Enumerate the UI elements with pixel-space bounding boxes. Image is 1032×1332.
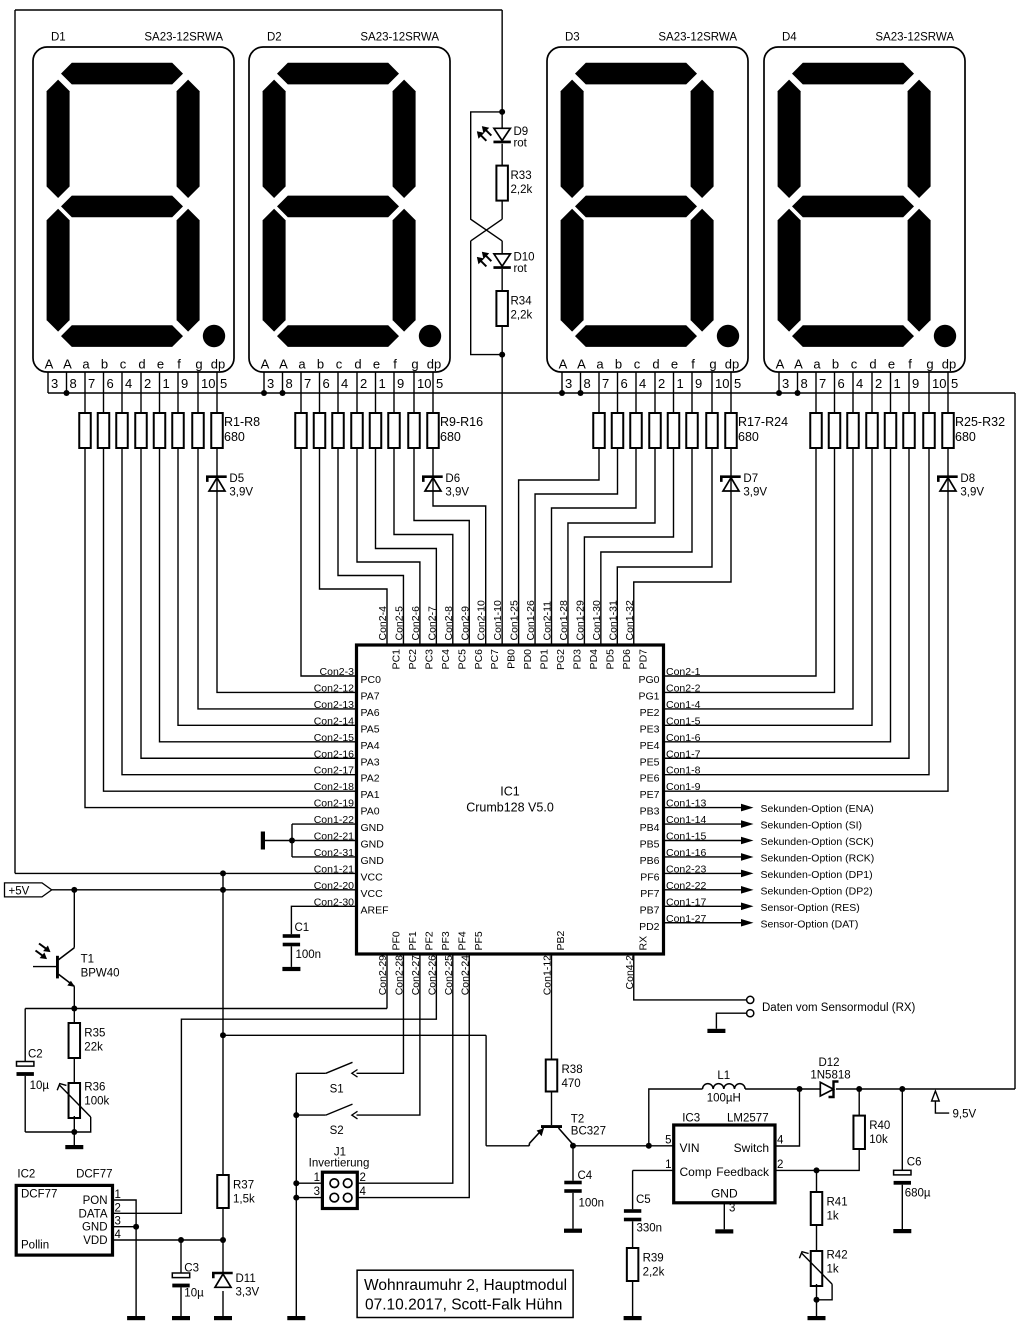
svg-text:GND: GND: [711, 1187, 738, 1201]
svg-text:Con2-6: Con2-6: [410, 606, 422, 641]
svg-text:Con1-8: Con1-8: [666, 765, 701, 777]
svg-text:PE4: PE4: [640, 740, 660, 752]
svg-text:R40: R40: [869, 1120, 890, 1132]
svg-text:LM2577: LM2577: [727, 1113, 769, 1125]
svg-text:PA2: PA2: [361, 773, 380, 785]
svg-text:680: 680: [224, 430, 245, 444]
svg-text:PB0: PB0: [506, 649, 518, 669]
svg-text:Sekunden-Option (SCK): Sekunden-Option (SCK): [761, 836, 874, 848]
svg-text:D8: D8: [960, 473, 975, 485]
svg-text:PA7: PA7: [361, 690, 380, 702]
svg-text:PD2: PD2: [639, 921, 660, 933]
svg-text:PE7: PE7: [640, 789, 660, 801]
svg-text:680: 680: [955, 430, 976, 444]
svg-text:BPW40: BPW40: [81, 968, 120, 980]
svg-text:3,9V: 3,9V: [445, 487, 469, 499]
svg-text:680: 680: [440, 430, 461, 444]
svg-text:Pollin: Pollin: [21, 1240, 49, 1252]
svg-text:PB7: PB7: [640, 904, 660, 916]
svg-text:1k: 1k: [827, 1264, 839, 1276]
svg-text:Sekunden-Option (RCK): Sekunden-Option (RCK): [761, 852, 875, 864]
svg-text:Con1-26: Con1-26: [525, 600, 537, 640]
svg-text:9,5V: 9,5V: [953, 1109, 977, 1121]
svg-text:Switch: Switch: [734, 1141, 769, 1155]
svg-text:PB3: PB3: [640, 806, 660, 818]
svg-text:Con1-5: Con1-5: [666, 715, 701, 727]
svg-text:PF7: PF7: [640, 888, 659, 900]
svg-text:VDD: VDD: [83, 1235, 107, 1247]
svg-text:Con2-11: Con2-11: [542, 601, 554, 641]
svg-text:PF2: PF2: [423, 931, 435, 950]
svg-text:R37: R37: [233, 1180, 254, 1192]
svg-text:Con1-9: Con1-9: [666, 781, 701, 793]
svg-text:680µ: 680µ: [905, 1188, 931, 1200]
svg-text:1k: 1k: [827, 1211, 839, 1223]
svg-text:Comp: Comp: [680, 1165, 712, 1179]
svg-text:1N5818: 1N5818: [810, 1070, 850, 1082]
svg-text:Con1-28: Con1-28: [558, 600, 570, 640]
svg-text:2: 2: [777, 1159, 783, 1171]
svg-text:PC1: PC1: [391, 649, 403, 670]
svg-text:3,9V: 3,9V: [743, 487, 767, 499]
svg-text:Con1-31: Con1-31: [607, 600, 619, 640]
svg-text:Con2-7: Con2-7: [426, 606, 438, 641]
svg-text:D10: D10: [513, 252, 534, 264]
svg-text:5: 5: [665, 1135, 671, 1147]
svg-text:Con1-10: Con1-10: [492, 600, 504, 640]
svg-text:IC3: IC3: [682, 1113, 700, 1125]
svg-text:VIN: VIN: [680, 1141, 700, 1155]
svg-text:R36: R36: [84, 1082, 105, 1094]
svg-text:T2: T2: [571, 1114, 584, 1126]
svg-text:Con1-29: Con1-29: [574, 600, 586, 640]
svg-text:VCC: VCC: [361, 888, 384, 900]
svg-text:D12: D12: [818, 1057, 839, 1069]
svg-text:R34: R34: [511, 296, 533, 308]
svg-text:3: 3: [115, 1216, 121, 1228]
svg-text:330n: 330n: [637, 1223, 663, 1235]
svg-text:PF3: PF3: [440, 931, 452, 950]
svg-text:D4: D4: [782, 32, 797, 44]
svg-text:R35: R35: [84, 1028, 105, 1040]
svg-text:Con2-4: Con2-4: [377, 606, 389, 641]
svg-text:Con2-2: Con2-2: [666, 682, 701, 694]
svg-text:rot: rot: [513, 138, 527, 150]
svg-text:S2: S2: [330, 1125, 344, 1137]
svg-text:SA23-12SRWA: SA23-12SRWA: [658, 32, 737, 44]
svg-text:1: 1: [665, 1159, 671, 1171]
svg-text:22k: 22k: [84, 1042, 103, 1054]
svg-text:Con2-19: Con2-19: [314, 798, 354, 810]
svg-text:Sekunden-Option (DP2): Sekunden-Option (DP2): [761, 885, 873, 897]
svg-text:PE6: PE6: [640, 773, 660, 785]
svg-text:R25-R32: R25-R32: [955, 415, 1005, 429]
svg-text:RX: RX: [637, 936, 649, 951]
svg-text:PG1: PG1: [638, 690, 659, 702]
svg-text:PC0: PC0: [361, 674, 382, 686]
svg-text:PD4: PD4: [588, 649, 600, 670]
svg-text:R39: R39: [643, 1253, 664, 1265]
svg-text:100n: 100n: [579, 1198, 605, 1210]
svg-text:100n: 100n: [296, 949, 322, 961]
svg-text:C5: C5: [636, 1194, 651, 1206]
svg-text:PF5: PF5: [473, 931, 485, 950]
svg-text:Con2-14: Con2-14: [314, 715, 354, 727]
svg-text:+5V: +5V: [9, 885, 30, 897]
svg-text:4: 4: [115, 1229, 122, 1241]
svg-text:GND: GND: [82, 1222, 108, 1234]
svg-text:GND: GND: [361, 839, 385, 851]
svg-text:Sekunden-Option (DP1): Sekunden-Option (DP1): [761, 869, 873, 881]
svg-text:R1-R8: R1-R8: [224, 415, 260, 429]
svg-text:Sensor-Option (RES): Sensor-Option (RES): [761, 902, 860, 914]
svg-text:Con2-10: Con2-10: [476, 600, 488, 640]
svg-text:Con1-4: Con1-4: [666, 699, 701, 711]
svg-text:PF6: PF6: [640, 871, 659, 883]
svg-text:3,3V: 3,3V: [236, 1287, 260, 1299]
svg-text:D2: D2: [267, 32, 282, 44]
svg-text:PF1: PF1: [407, 931, 419, 950]
svg-text:Con2-16: Con2-16: [314, 748, 354, 760]
svg-text:3: 3: [314, 1186, 320, 1198]
svg-text:C4: C4: [578, 1170, 593, 1182]
svg-text:DCF77: DCF77: [21, 1189, 57, 1201]
svg-text:DATA: DATA: [79, 1208, 108, 1220]
svg-text:PA5: PA5: [361, 723, 380, 735]
svg-text:DCF77: DCF77: [76, 1169, 112, 1181]
svg-text:07.10.2017, Scott-Falk Hühn: 07.10.2017, Scott-Falk Hühn: [365, 1297, 562, 1314]
svg-text:470: 470: [562, 1078, 581, 1090]
svg-text:PON: PON: [83, 1195, 108, 1207]
svg-text:Con2-9: Con2-9: [459, 606, 471, 641]
svg-text:PA0: PA0: [361, 806, 380, 818]
svg-text:PC2: PC2: [407, 649, 419, 670]
svg-text:Con2-18: Con2-18: [314, 781, 354, 793]
svg-text:10µ: 10µ: [30, 1080, 50, 1092]
svg-text:Sekunden-Option (SI): Sekunden-Option (SI): [761, 820, 863, 832]
svg-text:Con2-17: Con2-17: [314, 765, 354, 777]
svg-text:D3: D3: [565, 32, 580, 44]
svg-text:S1: S1: [330, 1083, 344, 1095]
svg-text:AREF: AREF: [361, 904, 389, 916]
svg-text:10k: 10k: [869, 1134, 888, 1146]
svg-text:Con2-13: Con2-13: [314, 699, 354, 711]
svg-text:PC5: PC5: [456, 649, 468, 670]
svg-text:Sensor-Option (DAT): Sensor-Option (DAT): [761, 918, 859, 930]
svg-text:L1: L1: [717, 1070, 730, 1082]
svg-text:3,9V: 3,9V: [960, 487, 984, 499]
svg-text:PB2: PB2: [555, 930, 567, 950]
svg-text:SA23-12SRWA: SA23-12SRWA: [875, 32, 954, 44]
svg-text:PE3: PE3: [640, 723, 660, 735]
svg-text:D9: D9: [513, 126, 528, 138]
svg-text:C3: C3: [184, 1263, 199, 1275]
svg-text:PA6: PA6: [361, 707, 380, 719]
svg-text:PB6: PB6: [640, 855, 660, 867]
svg-text:PA4: PA4: [361, 740, 380, 752]
svg-text:Feedback: Feedback: [716, 1165, 770, 1179]
svg-text:4: 4: [360, 1186, 367, 1198]
svg-text:100k: 100k: [84, 1096, 109, 1108]
svg-text:PB4: PB4: [640, 822, 660, 834]
svg-text:2: 2: [115, 1202, 121, 1214]
svg-text:SA23-12SRWA: SA23-12SRWA: [360, 32, 439, 44]
svg-text:D1: D1: [51, 32, 66, 44]
svg-text:100µH: 100µH: [707, 1093, 741, 1105]
svg-text:Sekunden-Option (ENA): Sekunden-Option (ENA): [761, 803, 874, 815]
svg-text:C6: C6: [907, 1156, 922, 1168]
svg-text:PD0: PD0: [522, 649, 534, 670]
svg-text:GND: GND: [361, 822, 385, 834]
svg-text:PC7: PC7: [489, 649, 501, 670]
svg-text:680: 680: [738, 430, 759, 444]
svg-text:Con2-5: Con2-5: [393, 606, 405, 641]
svg-text:PG2: PG2: [555, 649, 567, 670]
svg-text:1: 1: [115, 1189, 121, 1201]
svg-text:2,2k: 2,2k: [511, 184, 533, 196]
svg-text:R17-R24: R17-R24: [738, 415, 788, 429]
svg-text:2,2k: 2,2k: [511, 310, 533, 322]
svg-text:PG0: PG0: [638, 674, 659, 686]
svg-text:Crumb128 V5.0: Crumb128 V5.0: [466, 801, 554, 815]
svg-text:Con2-3: Con2-3: [320, 666, 355, 678]
svg-text:R41: R41: [827, 1197, 848, 1209]
svg-text:VCC: VCC: [361, 871, 384, 883]
svg-text:PA1: PA1: [361, 789, 380, 801]
svg-text:D5: D5: [229, 473, 244, 485]
svg-text:Invertierung: Invertierung: [309, 1157, 370, 1169]
svg-text:Con1-6: Con1-6: [666, 732, 701, 744]
svg-text:Con2-12: Con2-12: [314, 682, 354, 694]
svg-text:1: 1: [314, 1172, 320, 1184]
svg-text:4: 4: [777, 1135, 784, 1147]
svg-text:2: 2: [360, 1172, 366, 1184]
svg-text:GND: GND: [361, 855, 385, 867]
svg-text:Con1-30: Con1-30: [591, 600, 603, 640]
svg-text:PE2: PE2: [640, 707, 660, 719]
svg-text:R9-R16: R9-R16: [440, 415, 483, 429]
svg-text:R38: R38: [562, 1064, 583, 1076]
svg-text:PC6: PC6: [473, 649, 485, 670]
svg-text:Con2-1: Con2-1: [666, 666, 701, 678]
svg-text:3,9V: 3,9V: [229, 487, 253, 499]
svg-text:1,5k: 1,5k: [233, 1194, 255, 1206]
svg-text:D7: D7: [743, 473, 758, 485]
svg-text:PD5: PD5: [604, 649, 616, 670]
svg-text:R42: R42: [827, 1250, 848, 1262]
svg-text:Con2-8: Con2-8: [443, 606, 455, 641]
svg-text:D6: D6: [445, 473, 460, 485]
svg-text:Wohnraumuhr 2, Hauptmodul: Wohnraumuhr 2, Hauptmodul: [364, 1277, 567, 1294]
svg-text:Daten vom Sensormodul (RX): Daten vom Sensormodul (RX): [762, 1002, 916, 1014]
svg-text:PD1: PD1: [539, 649, 551, 670]
svg-text:D11: D11: [236, 1273, 256, 1285]
svg-text:PD3: PD3: [571, 649, 583, 670]
svg-text:PD6: PD6: [621, 649, 633, 670]
svg-text:R33: R33: [511, 170, 532, 182]
svg-text:PB5: PB5: [640, 839, 660, 851]
svg-text:T1: T1: [81, 954, 94, 966]
svg-text:SA23-12SRWA: SA23-12SRWA: [144, 32, 223, 44]
svg-text:IC1: IC1: [500, 785, 520, 799]
svg-text:10µ: 10µ: [184, 1288, 204, 1300]
svg-text:rot: rot: [513, 263, 527, 275]
svg-text:C1: C1: [295, 922, 310, 934]
svg-text:PC3: PC3: [423, 649, 435, 670]
svg-text:Con1-25: Con1-25: [509, 600, 521, 640]
svg-text:PE5: PE5: [640, 756, 660, 768]
svg-text:IC2: IC2: [17, 1169, 35, 1181]
svg-text:Con1-32: Con1-32: [624, 600, 636, 640]
svg-text:PF0: PF0: [391, 931, 403, 950]
svg-text:2,2k: 2,2k: [643, 1267, 665, 1279]
svg-text:PF4: PF4: [456, 931, 468, 950]
svg-text:PA3: PA3: [361, 756, 380, 768]
svg-text:Con2-15: Con2-15: [314, 732, 354, 744]
svg-text:Con1-7: Con1-7: [666, 748, 701, 760]
svg-text:PC4: PC4: [440, 649, 452, 670]
svg-text:C2: C2: [28, 1049, 43, 1061]
svg-text:BC327: BC327: [571, 1126, 606, 1138]
svg-text:3: 3: [729, 1203, 735, 1215]
svg-text:PD7: PD7: [637, 649, 649, 670]
